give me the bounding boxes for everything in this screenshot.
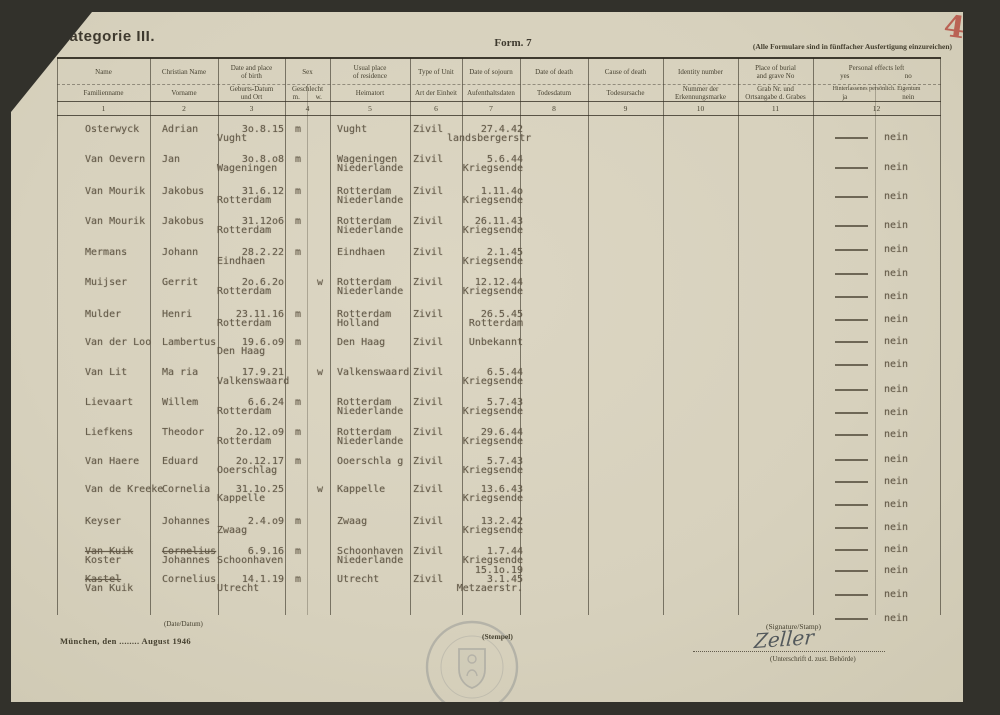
unit-type-cell: Zivil (413, 155, 443, 165)
birth-place-cell: Rotterdam (217, 196, 271, 206)
effects-yes-dash (835, 296, 868, 298)
sex-cell: m (287, 517, 309, 527)
sojourn-place-cell: Metzaerstr. (447, 584, 523, 594)
table-row: KastelVan KuikCornelius14.1.19UtrechtmUt… (57, 570, 940, 600)
paper-sheet: Kategorie III. Form. 7 (Alle Formulare s… (0, 0, 1000, 715)
table-row: LievaartWillem6.6.24RotterdammRotterdamN… (57, 393, 940, 423)
date-field-label: (Date/Datum) (164, 620, 203, 628)
unit-type-cell: Zivil (413, 187, 443, 197)
name-cell: Van der Loo (85, 338, 151, 348)
unit-type-cell: Zivil (413, 398, 443, 408)
effects-no-value: nein (884, 614, 908, 624)
sojourn-place-cell: Kriegsende (447, 287, 523, 297)
name-cell: Van de Kreeke (85, 485, 163, 495)
effects-no-value: nein (884, 337, 908, 347)
birth-place-cell: Kappelle (217, 494, 265, 504)
sex-cell: w (309, 278, 331, 288)
table-row: OsterwyckAdrian3o.8.15VughtmVughtZivil27… (57, 120, 940, 150)
residence-country-cell: Niederlande (337, 407, 403, 417)
sex-cell: m (287, 125, 309, 135)
table-row: Van de KreekeCornelia31.1o.25KappellewKa… (57, 480, 940, 510)
residence-country-cell: Holland (337, 319, 379, 329)
unit-type-cell: Zivil (413, 575, 443, 585)
sex-cell: w (309, 485, 331, 495)
sex-cell: m (287, 217, 309, 227)
table-row: MuijserGerrit2o.6.2oRotterdamwRotterdamN… (57, 273, 940, 303)
residence-country-cell: Niederlande (337, 556, 403, 566)
unit-type-cell: Zivil (413, 547, 443, 557)
effects-no-value: nein (884, 408, 908, 418)
residence-cell: Kappelle (337, 485, 385, 495)
effects-no-value: nein (884, 566, 908, 576)
residence-country-cell: Niederlande (337, 287, 403, 297)
birth-place-cell: Zwaag (217, 526, 247, 536)
effects-no-value: nein (884, 315, 908, 325)
birth-place-cell: Den Haag (217, 347, 265, 357)
effects-no-value: nein (884, 221, 908, 231)
residence-cell: Utrecht (337, 575, 379, 585)
table-row: LiefkensTheodor2o.12.o9RotterdammRotterd… (57, 423, 940, 453)
effects-yes-dash (835, 225, 868, 227)
sex-cell: m (287, 428, 309, 438)
residence-cell: Ooerschla g (337, 457, 403, 467)
christian-name-cell: Jan (162, 155, 180, 165)
unit-type-cell: Zivil (413, 517, 443, 527)
sojourn-place-cell: Kriegsende (447, 226, 523, 236)
effects-yes-dash (835, 549, 868, 551)
christian-name-cell: Johann (162, 248, 198, 258)
column-line (940, 58, 941, 615)
name-cell: Keyser (85, 517, 121, 527)
effects-no-value: nein (884, 590, 908, 600)
birth-place-cell: Wageningen (217, 164, 277, 174)
name-correction: Koster (85, 556, 121, 566)
name-cell: Van Oevern (85, 155, 145, 165)
sojourn-place-cell: Kriegsende (447, 196, 523, 206)
effects-yes-dash (835, 504, 868, 506)
scanned-document: Kategorie III. Form. 7 (Alle Formulare s… (0, 0, 1000, 715)
unit-type-cell: Zivil (413, 485, 443, 495)
sex-cell: w (309, 368, 331, 378)
effects-yes-dash (835, 459, 868, 461)
sojourn-place-cell: Rotterdam (447, 319, 523, 329)
effects-yes-dash (835, 618, 868, 620)
name-cell: Liefkens (85, 428, 133, 438)
sojourn-place-cell: landsbergerstr (447, 134, 523, 144)
sojourn-place-cell: Kriegsende (447, 466, 523, 476)
residence-cell: Valkenswaard (337, 368, 409, 378)
effects-no-value: nein (884, 455, 908, 465)
sex-cell: m (287, 338, 309, 348)
christian-name-cell: Ma ria (162, 368, 198, 378)
christian-name-cell: Willem (162, 398, 198, 408)
name-cell: Mulder (85, 310, 121, 320)
sojourn-place-cell: Kriegsende (447, 407, 523, 417)
table-body: OsterwyckAdrian3o.8.15VughtmVughtZivil27… (57, 0, 940, 715)
birth-place-cell: Schoonhaven (217, 556, 283, 566)
unit-type-cell: Zivil (413, 248, 443, 258)
effects-yes-dash (835, 319, 868, 321)
table-row: MulderHenri23.11.16RotterdammRotterdamHo… (57, 305, 940, 335)
unit-type-cell: Zivil (413, 457, 443, 467)
birth-place-cell: Vught (217, 134, 247, 144)
table-row: MermansJohann28.2.22EindhaenmEindhaenZiv… (57, 243, 940, 273)
christian-name-cell: Cornelia (162, 485, 210, 495)
residence-cell: Eindhaen (337, 248, 385, 258)
effects-yes-dash (835, 434, 868, 436)
residence-cell: Vught (337, 125, 367, 135)
effects-no-value: nein (884, 360, 908, 370)
table-row: Van der LooLambertus19.6.o9Den HaagmDen … (57, 333, 940, 363)
christian-name-cell: Adrian (162, 125, 198, 135)
effects-no-value: nein (884, 163, 908, 173)
name-cell: Lievaart (85, 398, 133, 408)
table-row: Van HaereEduard2o.12.17OoerschlagmOoersc… (57, 452, 940, 482)
sojourn-place-cell: Kriegsende (447, 437, 523, 447)
residence-country-cell: Niederlande (337, 437, 403, 447)
christian-name-cell: Jakobus (162, 217, 204, 227)
birth-place-cell: Ooerschlag (217, 466, 277, 476)
sex-cell: m (287, 155, 309, 165)
christian-name-cell: Eduard (162, 457, 198, 467)
unit-type-cell: Zivil (413, 338, 443, 348)
residence-country-cell: Niederlande (337, 226, 403, 236)
christian-name-cell: Jakobus (162, 187, 204, 197)
effects-yes-dash (835, 137, 868, 139)
effects-yes-dash (835, 196, 868, 198)
effects-no-value: nein (884, 292, 908, 302)
name-cell: Van Mourik (85, 217, 145, 227)
sex-cell: m (287, 187, 309, 197)
birth-place-cell: Rotterdam (217, 226, 271, 236)
unit-type-cell: Zivil (413, 278, 443, 288)
table-row: Van MourikJakobus31.12o6RotterdammRotter… (57, 212, 940, 242)
sex-cell: m (287, 398, 309, 408)
name-cell: Muijser (85, 278, 127, 288)
stamp-field-label: (Stempel) (482, 632, 513, 641)
effects-no-value: nein (884, 430, 908, 440)
effects-no-value: nein (884, 133, 908, 143)
sex-cell: m (287, 457, 309, 467)
name-correction: Van Kuik (85, 584, 133, 594)
effects-no-value: nein (884, 385, 908, 395)
table-row: Van LitMa ria17.9.21ValkenswaardwValkens… (57, 363, 940, 393)
effects-no-value: nein (884, 545, 908, 555)
christian-name-cell: Gerrit (162, 278, 198, 288)
effects-yes-dash (835, 481, 868, 483)
signature-authority-label: (Unterschrift d. zust. Behörde) (770, 655, 856, 663)
christian-name-cell: Lambertus (162, 338, 216, 348)
name-cell: Van Haere (85, 457, 139, 467)
name-cell: Mermans (85, 248, 127, 258)
effects-no-value: nein (884, 500, 908, 510)
table-row: Van MourikJakobus31.6.12RotterdammRotter… (57, 182, 940, 212)
effects-yes-dash (835, 594, 868, 596)
residence-cell: Zwaag (337, 517, 367, 527)
sojourn-place-cell: Kriegsende (447, 526, 523, 536)
residence-country-cell: Niederlande (337, 196, 403, 206)
effects-yes-dash (835, 389, 868, 391)
effects-no-value: nein (884, 477, 908, 487)
christian-name-cell: Johannes (162, 517, 210, 527)
effects-yes-dash (835, 249, 868, 251)
sojourn-place-cell: Kriegsende (447, 494, 523, 504)
birth-place-cell: Rotterdam (217, 437, 271, 447)
effects-no-value: nein (884, 269, 908, 279)
unit-type-cell: Zivil (413, 368, 443, 378)
christian-name-correction: Johannes (162, 556, 210, 566)
unit-type-cell: Zivil (413, 428, 443, 438)
birth-place-cell: Rotterdam (217, 407, 271, 417)
birth-place-cell: Eindhaen (217, 257, 265, 267)
unit-type-cell: Zivil (413, 125, 443, 135)
unit-type-cell: Zivil (413, 217, 443, 227)
sojourn-place-cell: Kriegsende (447, 257, 523, 267)
effects-yes-dash (835, 167, 868, 169)
sex-cell: m (287, 248, 309, 258)
handwritten-signature: Zeller (753, 625, 814, 653)
name-cell: Van Lit (85, 368, 127, 378)
name-cell: Van Mourik (85, 187, 145, 197)
effects-no-value: nein (884, 245, 908, 255)
birth-place-cell: Rotterdam (217, 287, 271, 297)
effects-no-value: nein (884, 192, 908, 202)
signature-dotted-line (693, 651, 885, 652)
effects-yes-dash (835, 341, 868, 343)
handwritten-page-number: 4 (942, 9, 968, 47)
effects-yes-dash (835, 412, 868, 414)
table-row: KeyserJohannes2.4.o9ZwaagmZwaagZivil13.2… (57, 512, 940, 542)
residence-country-cell: Niederlande (337, 164, 403, 174)
christian-name-cell: Cornelius (162, 575, 216, 585)
sex-cell: m (287, 575, 309, 585)
effects-yes-dash (835, 570, 868, 572)
birth-place-cell: Rotterdam (217, 319, 271, 329)
sojourn-place-cell: Kriegsende (447, 164, 523, 174)
sex-cell: m (287, 547, 309, 557)
sojourn-place-cell: Kriegsende (447, 377, 523, 387)
table-row: Van OevernJan3o.8.o8WageningenmWageninge… (57, 150, 940, 180)
name-cell: Osterwyck (85, 125, 139, 135)
birth-place-cell: Valkenswaard (217, 377, 289, 387)
place-date-line: München, den ........ August 1946 (60, 636, 191, 646)
christian-name-cell: Henri (162, 310, 192, 320)
effects-no-value: nein (884, 523, 908, 533)
effects-yes-dash (835, 527, 868, 529)
sex-cell: m (287, 310, 309, 320)
residence-cell: Den Haag (337, 338, 385, 348)
birth-place-cell: Utrecht (217, 584, 259, 594)
unit-type-cell: Zivil (413, 310, 443, 320)
christian-name-cell: Theodor (162, 428, 204, 438)
effects-yes-dash (835, 364, 868, 366)
effects-yes-dash (835, 273, 868, 275)
sojourn-date-cell: Unbekannt (447, 338, 523, 348)
